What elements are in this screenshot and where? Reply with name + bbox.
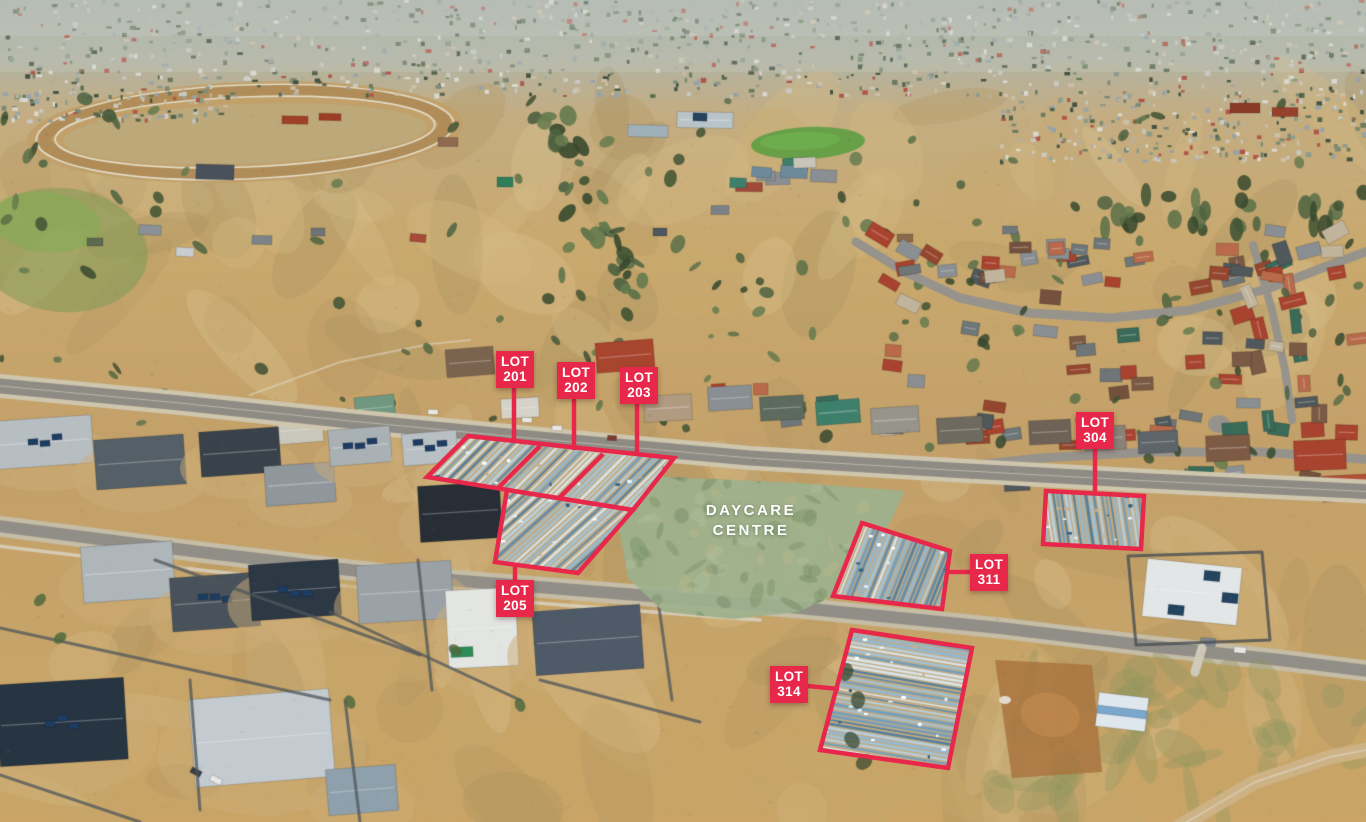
daycare-centre-line1: DAYCARE bbox=[692, 501, 810, 521]
lot-label-number: 314 bbox=[775, 685, 803, 700]
lot-label-prefix: LOT bbox=[775, 670, 803, 685]
lot-311-label: LOT 311 bbox=[970, 554, 1008, 591]
lot-201-label: LOT 201 bbox=[496, 351, 534, 388]
lot-label-number: 304 bbox=[1081, 431, 1109, 446]
lot-304-label: LOT 304 bbox=[1076, 412, 1114, 449]
lot-label-prefix: LOT bbox=[562, 366, 590, 381]
daycare-centre-line2: CENTRE bbox=[692, 521, 810, 541]
lot-label-prefix: LOT bbox=[625, 371, 653, 386]
lot-202-label: LOT 202 bbox=[557, 362, 595, 399]
daycare-centre-label: DAYCARE CENTRE bbox=[692, 501, 810, 540]
lot-label-number: 201 bbox=[501, 370, 529, 385]
lot-label-prefix: LOT bbox=[501, 584, 529, 599]
lot-label-prefix: LOT bbox=[1081, 416, 1109, 431]
aerial-photo-canvas bbox=[0, 0, 1366, 822]
lot-label-prefix: LOT bbox=[501, 355, 529, 370]
lot-label-number: 205 bbox=[501, 599, 529, 614]
lot-203-label: LOT 203 bbox=[620, 367, 658, 404]
lot-314-label: LOT 314 bbox=[770, 666, 808, 703]
lot-label-prefix: LOT bbox=[975, 558, 1003, 573]
lot-label-number: 311 bbox=[975, 573, 1003, 588]
lot-205-label: LOT 205 bbox=[496, 580, 534, 617]
lot-label-number: 203 bbox=[625, 386, 653, 401]
lot-label-number: 202 bbox=[562, 381, 590, 396]
aerial-photo: LOT 201 LOT 202 LOT 203 LOT 205 LOT 304 … bbox=[0, 0, 1366, 822]
